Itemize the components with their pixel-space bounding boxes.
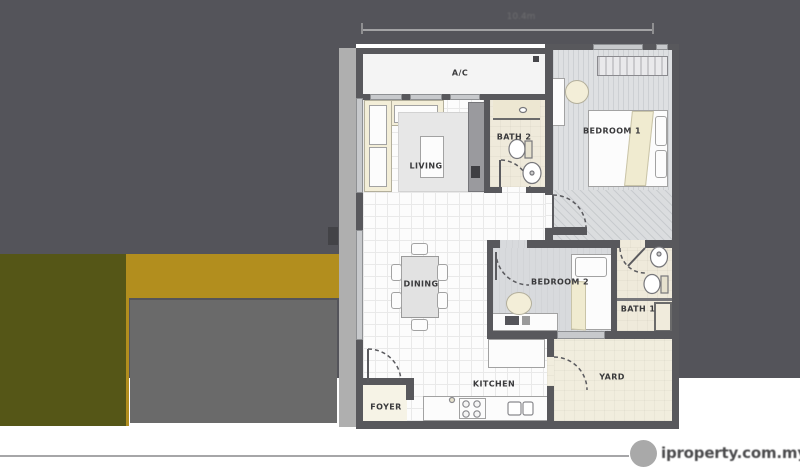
gold-strip xyxy=(126,298,129,426)
coffee-table xyxy=(420,136,444,178)
dimension-tick xyxy=(361,23,363,34)
tv xyxy=(471,166,480,178)
wall-segment xyxy=(547,227,587,235)
column-dot xyxy=(533,56,539,62)
olive-block xyxy=(0,254,126,426)
dining-chair xyxy=(391,292,402,309)
dining-chair xyxy=(411,243,428,255)
dimension-line xyxy=(362,29,654,31)
window-segment xyxy=(557,331,605,339)
dining-chair xyxy=(391,264,402,281)
door-opening xyxy=(620,240,645,248)
bath2-vanity xyxy=(493,98,540,120)
pillow xyxy=(655,150,667,178)
room-label-dining: DINING xyxy=(404,280,439,289)
kitchen-cabinet xyxy=(488,339,545,368)
window-segment xyxy=(656,44,668,50)
wall-segment xyxy=(672,44,679,429)
wall-segment xyxy=(611,240,617,339)
door-opening xyxy=(547,357,554,386)
watermark-text: iproperty.com.my xyxy=(661,444,800,462)
stove xyxy=(459,398,486,419)
desk-chair xyxy=(565,80,589,104)
room-label-bedroom1: BEDROOM 1 xyxy=(583,127,641,136)
room-label-living: LIVING xyxy=(410,162,443,171)
wardrobe xyxy=(597,56,668,76)
dimension-tick xyxy=(652,23,654,34)
bath1-shower-niche xyxy=(654,302,672,332)
dining-chair xyxy=(437,264,448,281)
gold-block xyxy=(126,254,339,298)
door-opening xyxy=(500,240,527,248)
window-segment xyxy=(356,98,363,193)
wall-segment xyxy=(484,187,502,193)
room-label-bedroom2: BEDROOM 2 xyxy=(531,278,589,287)
sofa-seat xyxy=(369,105,387,145)
wall-segment xyxy=(547,339,554,357)
room-label-foyer: FOYER xyxy=(370,403,401,412)
desk-items xyxy=(505,316,519,325)
wall-segment xyxy=(406,378,414,400)
room-label-ac: A/C xyxy=(452,69,468,78)
dark-square xyxy=(328,227,338,245)
window-segment xyxy=(450,94,480,100)
window-segment xyxy=(593,44,643,50)
pillow xyxy=(655,116,667,146)
window-segment xyxy=(370,94,402,100)
watermark-line xyxy=(0,455,629,457)
dining-chair xyxy=(411,319,428,331)
wall-segment xyxy=(356,421,679,429)
wall-segment xyxy=(617,298,672,301)
watermark-logo-icon xyxy=(630,440,657,467)
room-label-kitchen: KITCHEN xyxy=(473,380,515,389)
wall-segment xyxy=(547,386,554,429)
desk-chair xyxy=(506,292,532,315)
wall-segment xyxy=(487,240,493,339)
wall-segment xyxy=(545,44,553,195)
wall-segment xyxy=(356,378,413,385)
room-label-bath1: BATH 1 xyxy=(621,305,656,314)
pillow xyxy=(575,257,607,277)
floorplan-screenshot: A/C LIVING BATH 2 BEDROOM 1 DINING BEDRO… xyxy=(0,0,800,472)
desk-items xyxy=(522,316,530,325)
door-opening xyxy=(545,195,553,228)
dimension-label: 10.4m xyxy=(507,12,536,22)
wall-segment xyxy=(484,94,490,193)
light-strip xyxy=(339,48,356,427)
blanket xyxy=(571,280,586,330)
sofa-seat xyxy=(369,147,387,187)
wall-segment xyxy=(356,48,546,54)
tv-cabinet xyxy=(468,102,485,192)
wall-segment xyxy=(526,187,553,193)
room-label-bath2: BATH 2 xyxy=(497,133,532,142)
window-segment xyxy=(410,94,442,100)
window-segment xyxy=(356,230,363,340)
room-label-yard: YARD xyxy=(599,373,625,382)
dining-chair xyxy=(437,292,448,309)
gray-block xyxy=(130,300,337,423)
